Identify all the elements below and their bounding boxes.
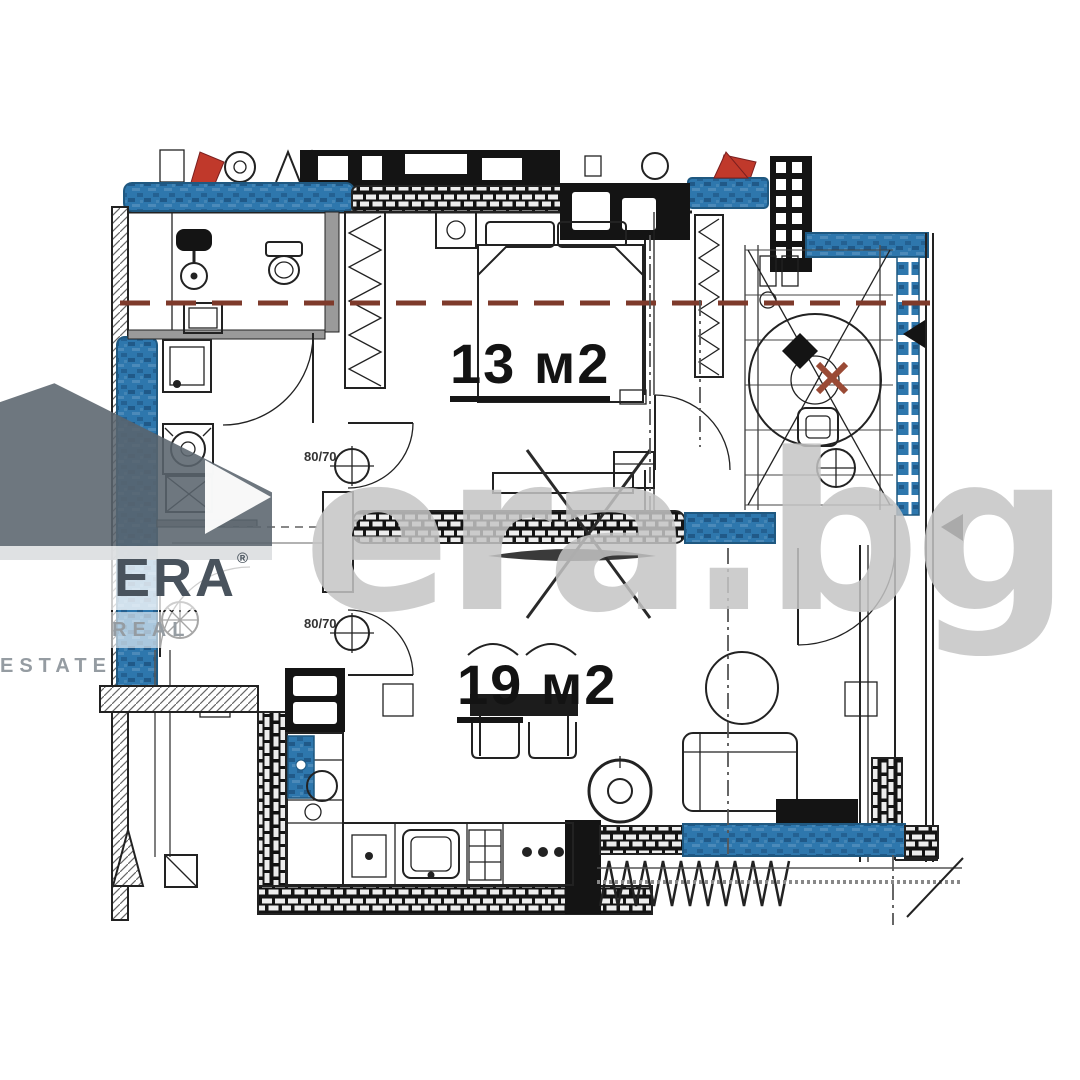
svg-text:80/70: 80/70 (304, 449, 337, 464)
black-corner-wall (565, 820, 601, 914)
living-door (798, 548, 895, 645)
floor-lamp-icon (589, 756, 651, 822)
red-marker-top-left (190, 152, 224, 186)
floor-plan-drawing: 80/70 80/70 (0, 0, 1080, 1080)
bathroom-wardrobe-wall (325, 212, 339, 332)
blue-wall-middle (685, 513, 775, 543)
toilet-icon (266, 242, 302, 284)
entrance-hall-door (655, 395, 730, 470)
vent-symbol-bottom: 80/70 (304, 613, 374, 653)
brick-wall-kitchen-left (258, 712, 286, 914)
brick-wall-bottom-right (905, 826, 938, 858)
living-area-label: 19 м2 (457, 652, 617, 717)
blue-dashed-wall-right (897, 257, 919, 515)
wall-bath-laundry (128, 330, 325, 339)
hall-door-bottom (348, 610, 413, 675)
floor-plan-page: 80/70 80/70 (0, 0, 1080, 1080)
hall-door-top (348, 423, 413, 488)
blue-wall-top-left (124, 183, 354, 211)
fridge-icon (285, 668, 345, 732)
wall-laundry-hall (157, 520, 257, 527)
blue-wall-top-right (688, 178, 768, 208)
blue-wall-bottom (683, 824, 905, 856)
stair-shaft (745, 245, 893, 510)
bathroom-door (223, 333, 313, 425)
laundry-room (157, 340, 257, 657)
fan-icon (162, 602, 198, 638)
kitchen-sink-icon (403, 830, 459, 879)
valve-icon (782, 333, 818, 369)
shelf-icon (184, 303, 222, 333)
sink-unit-icon (163, 340, 211, 392)
blue-wall-left (117, 337, 157, 697)
wardrobe-left (345, 212, 385, 388)
vent-symbol-top: 80/70 (304, 446, 374, 486)
washing-machine-icon (163, 424, 213, 474)
hatch-wall-left (100, 686, 258, 712)
middle-wall (323, 450, 895, 645)
cross-marker-icon (818, 364, 846, 392)
shower-icon (176, 229, 212, 289)
entrance-arrow-icon (941, 514, 963, 541)
brick-wall-middle (353, 511, 685, 543)
round-table (706, 652, 778, 724)
svg-text:80/70: 80/70 (304, 616, 337, 631)
blue-wall-entry-top (806, 233, 928, 257)
shelf (493, 473, 633, 493)
brick-wall-bottom-mid (600, 826, 684, 854)
tv-unit (776, 799, 858, 825)
shaft-box-icon (166, 476, 212, 512)
bathroom (128, 212, 339, 425)
cooktop-icon (522, 847, 564, 857)
laundry-door (160, 567, 250, 657)
oven-icon (469, 830, 501, 880)
bedroom-area-label: 13 м2 (450, 331, 610, 396)
nightstand (436, 212, 476, 248)
boiler-icon (749, 314, 881, 446)
